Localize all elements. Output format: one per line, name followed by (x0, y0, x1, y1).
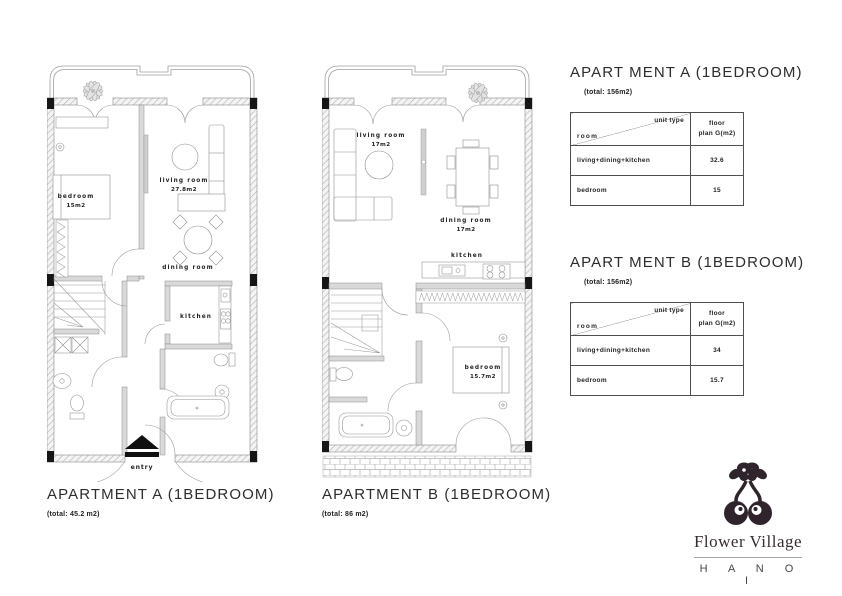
floor-plan-b: living room 17m2 dining room 17m2 kitche… (322, 57, 537, 497)
plan-a-bedroom-label: bedroom (58, 194, 95, 200)
rug-icon (365, 151, 393, 179)
round-table-icon (172, 144, 198, 170)
table-row: bedroom 15 (571, 176, 744, 206)
dining-table-icon (447, 140, 498, 214)
row-room: bedroom (571, 176, 691, 206)
apartment-a-block: APART MENT A (1BEDROOM) (total: 156m2) u… (570, 64, 810, 206)
plan-a-dining-label: dining room (162, 265, 214, 271)
plan-b-living-area: 17m2 (371, 142, 390, 148)
plan-b-caption-title: APARTMENT B (1BEDROOM) (322, 486, 551, 503)
header-room: room (577, 323, 598, 330)
floor-plan-a: bedroom 15m2 living room 27.8m2 dining r… (47, 57, 262, 482)
logo-rule (694, 557, 802, 558)
header-floor-line1: floor (692, 309, 742, 319)
plan-b-kitchen-label: kitchen (451, 253, 483, 259)
balcony-parapet (50, 66, 254, 98)
logo-brand: Flower Village (692, 532, 804, 552)
apartment-b-table: unit type room floor plan G(m2) living+d… (570, 302, 744, 396)
apartment-b-total: (total: 156m2) (584, 279, 810, 286)
summary-panel: APART MENT A (1BEDROOM) (total: 156m2) u… (570, 64, 810, 396)
table-header-row: unit type room floor plan G(m2) (571, 303, 744, 336)
coil-strip-icon (416, 291, 525, 303)
plan-b-bedroom-area: 15.7m2 (470, 374, 496, 380)
kitchen-counter-icon (422, 262, 525, 279)
dining-table-icon (173, 215, 223, 265)
header-floor-line1: floor (692, 119, 742, 129)
table-row: living+dining+kitchen 34 (571, 336, 744, 366)
plan-a-caption: APARTMENT A (1BEDROOM) (total: 45.2 m2) (47, 486, 275, 518)
header-floor-line2: plan G(m2) (692, 319, 742, 329)
apartment-a-total: (total: 156m2) (584, 89, 810, 96)
header-unit-type: unit type (654, 117, 684, 124)
table-row: bedroom 15.7 (571, 366, 744, 396)
apartment-a-title: APART MENT A (1BEDROOM) (570, 64, 810, 81)
header-unit-type: unit type (654, 307, 684, 314)
drawing-sheet: bedroom 15m2 living room 27.8m2 dining r… (0, 0, 842, 596)
header-floor-line2: plan G(m2) (692, 129, 742, 139)
flower-ornament-icon (703, 456, 793, 528)
plant-icon (83, 81, 104, 102)
bathroom-right-icons (167, 353, 235, 419)
plan-a-living-area: 27.8m2 (171, 187, 197, 193)
plan-a-living-label: living room (160, 178, 209, 184)
plan-b-caption: APARTMENT B (1BEDROOM) (total: 86 m2) (322, 486, 551, 518)
header-diagonal-cell: unit type room (571, 303, 691, 336)
row-room: living+dining+kitchen (571, 336, 691, 366)
plan-b-dining-label: dining room (440, 218, 492, 224)
table-row: living+dining+kitchen 32.6 (571, 146, 744, 176)
bathroom-left-icons (53, 337, 88, 419)
plan-a-caption-total: (total: 45.2 m2) (47, 511, 275, 518)
row-room: bedroom (571, 366, 691, 396)
row-area: 34 (691, 336, 744, 366)
tv-cabinet-icon (144, 135, 148, 193)
plan-b-dining-area: 17m2 (456, 227, 475, 233)
apartment-b-block: APART MENT B (1BEDROOM) (total: 156m2) u… (570, 254, 810, 396)
balcony-parapet (325, 66, 529, 98)
french-door-icon (354, 105, 480, 124)
stairs-icon (331, 289, 382, 356)
kitchen-counter-icon (219, 286, 231, 343)
apartment-a-table: unit type room floor plan G(m2) living+d… (570, 112, 744, 206)
plan-b-bedroom-label: bedroom (465, 365, 502, 371)
table-header-row: unit type room floor plan G(m2) (571, 113, 744, 146)
wardrobe-icon (56, 220, 68, 277)
dresser-icon (56, 117, 108, 151)
plan-b-living-label: living room (357, 133, 406, 139)
header-floor-plan: floor plan G(m2) (691, 303, 744, 336)
apartment-b-title: APART MENT B (1BEDROOM) (570, 254, 810, 271)
header-diagonal-cell: unit type room (571, 113, 691, 146)
header-floor-plan: floor plan G(m2) (691, 113, 744, 146)
terrace-paving (323, 456, 531, 477)
stairs-icon (54, 279, 105, 335)
row-area: 32.6 (691, 146, 744, 176)
header-room: room (577, 133, 598, 140)
tv-cabinet-icon (421, 129, 426, 195)
bed-icon (453, 334, 509, 409)
logo: Flower Village H A N O I (692, 456, 804, 587)
plan-a-bedroom-area: 15m2 (66, 203, 85, 209)
row-area: 15 (691, 176, 744, 206)
plan-a-entry-label: entry (131, 464, 154, 471)
plan-a-caption-title: APARTMENT A (1BEDROOM) (47, 486, 275, 503)
plan-b-caption-total: (total: 86 m2) (322, 511, 551, 518)
entry-arrow-icon (125, 435, 159, 457)
plan-a-kitchen-label: kitchen (180, 314, 212, 320)
logo-city: H A N O I (698, 563, 804, 587)
row-room: living+dining+kitchen (571, 146, 691, 176)
row-area: 15.7 (691, 366, 744, 396)
